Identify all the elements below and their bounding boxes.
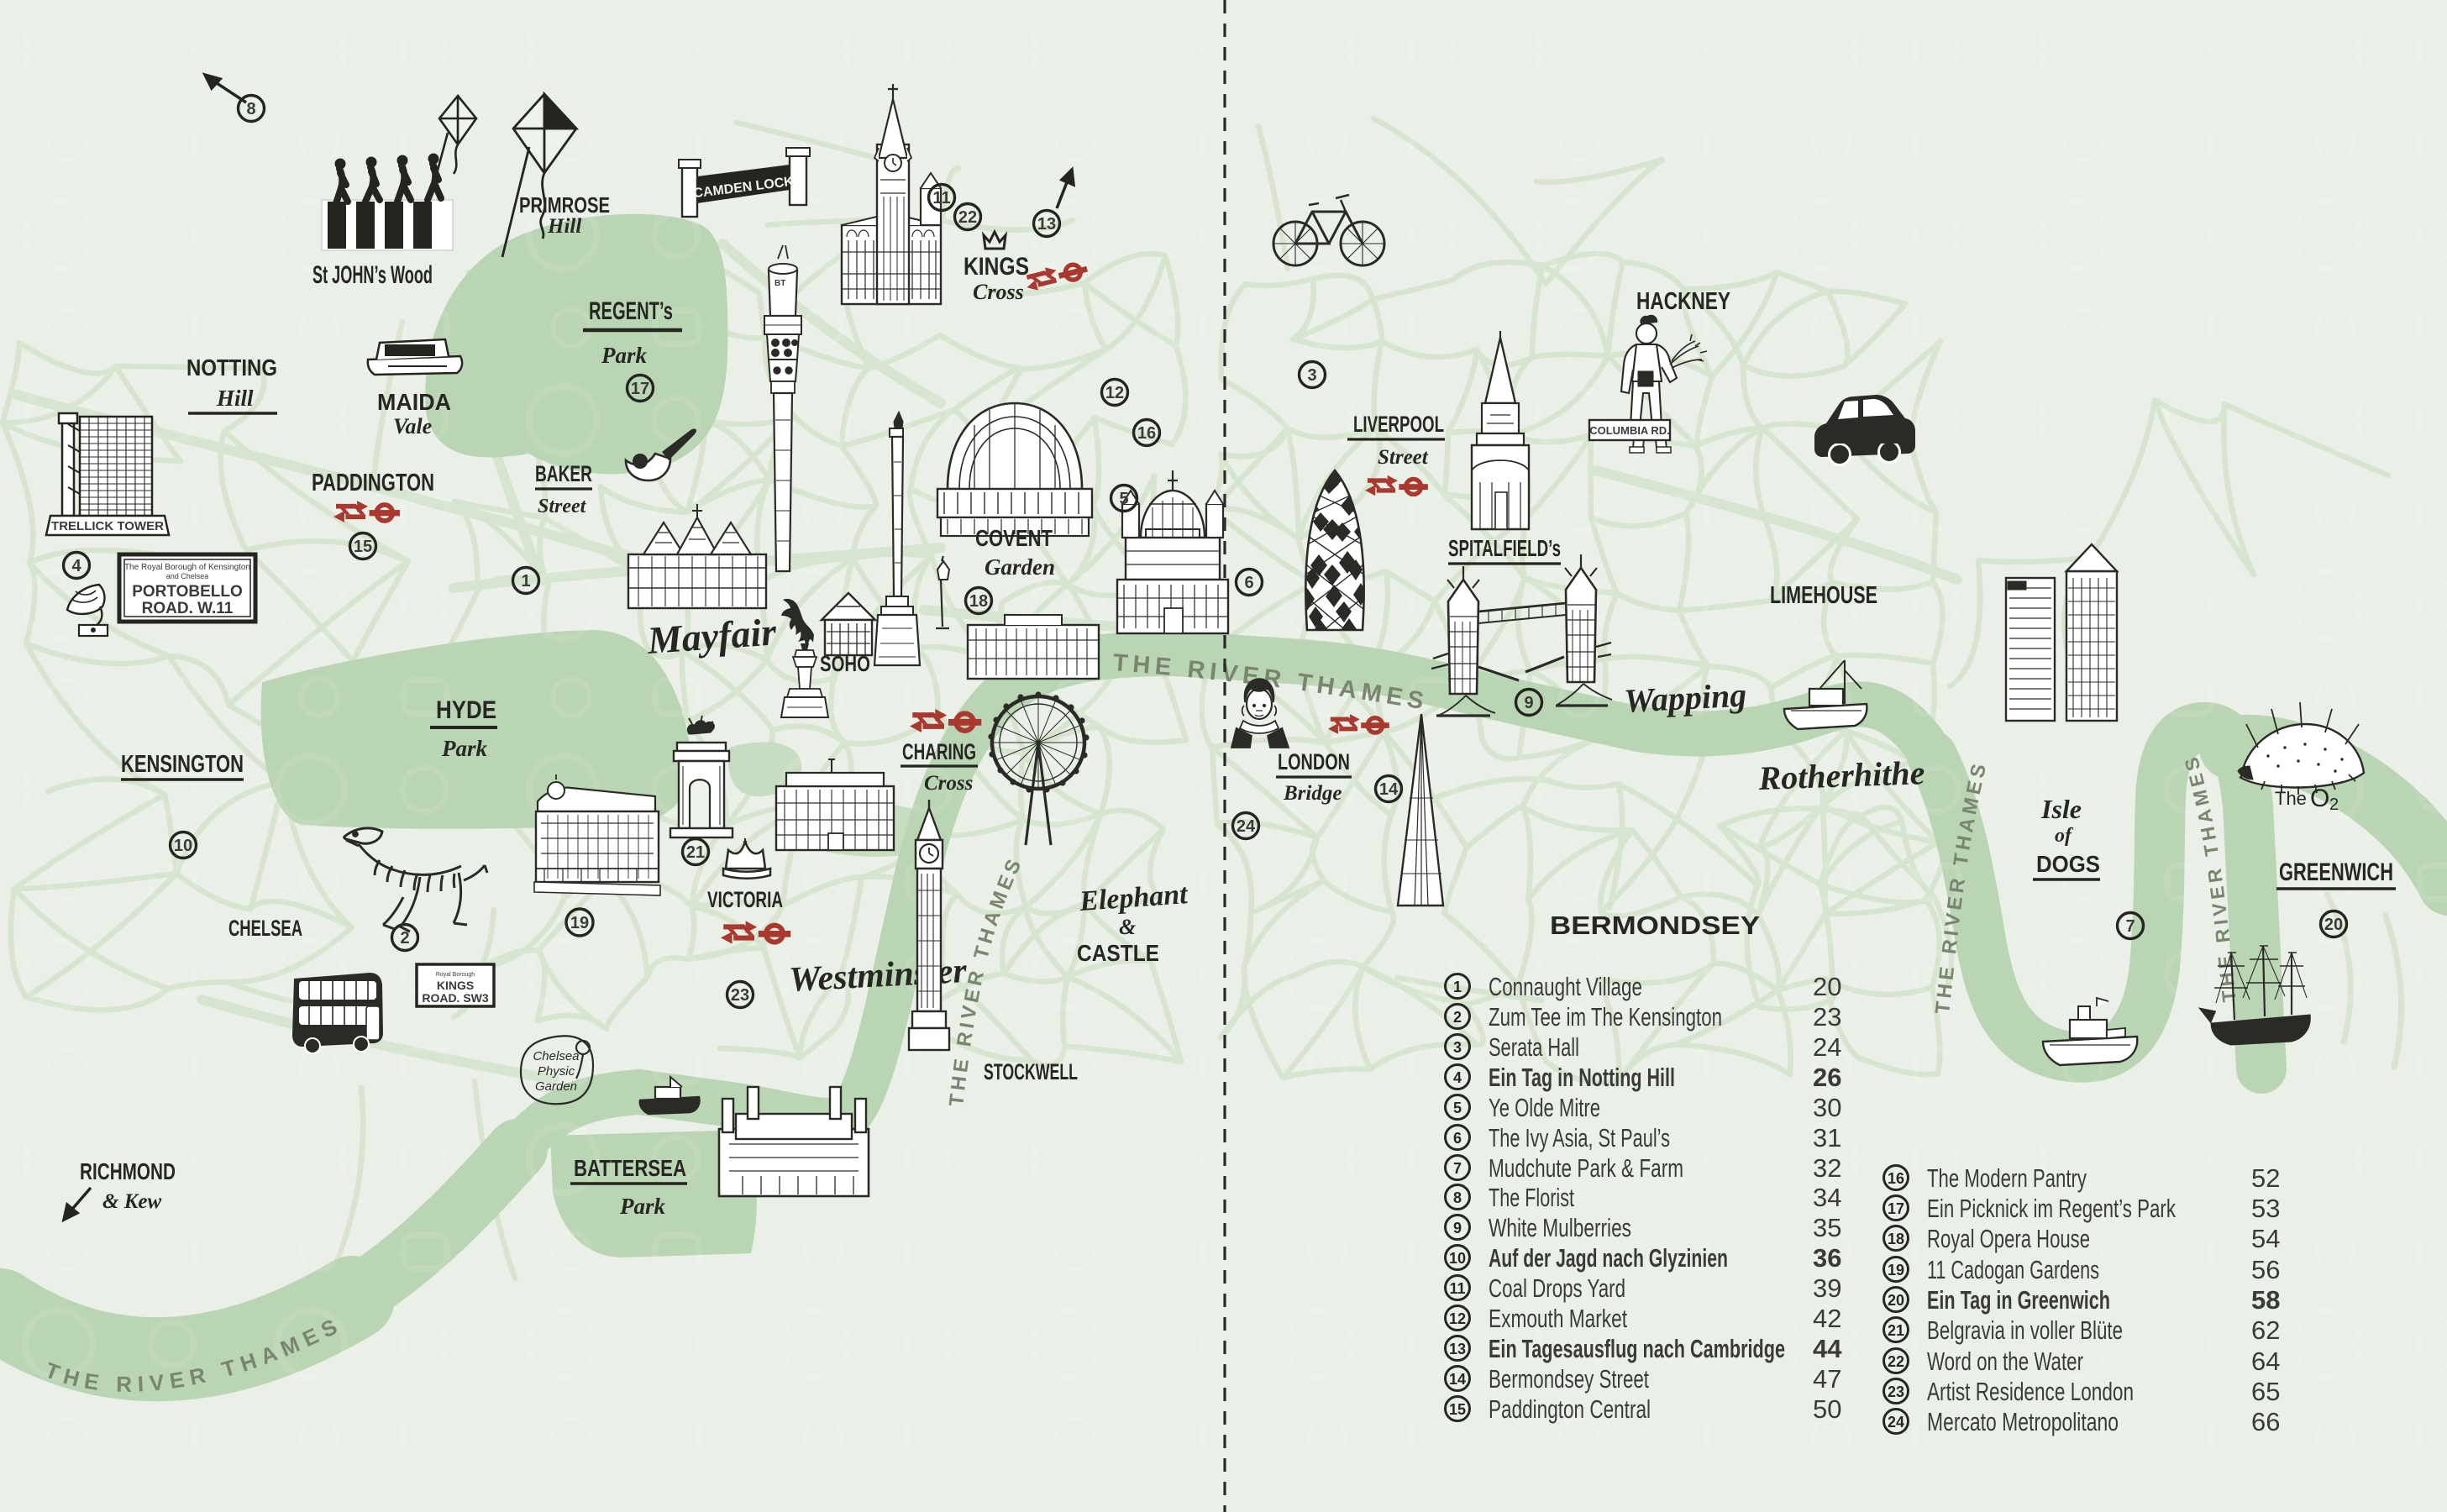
svg-text:Ye Olde Mitre: Ye Olde Mitre	[1489, 1093, 1600, 1122]
svg-text:58: 58	[2251, 1285, 2280, 1315]
svg-text:54: 54	[2251, 1224, 2280, 1253]
svg-text:BT: BT	[775, 279, 785, 288]
svg-text:Chelsea: Chelsea	[533, 1049, 579, 1063]
svg-text:Mercato Metropolitano: Mercato Metropolitano	[1927, 1407, 2119, 1436]
svg-text:1: 1	[1453, 979, 1462, 995]
svg-text:15: 15	[1449, 1401, 1466, 1418]
svg-text:42: 42	[1813, 1304, 1841, 1333]
svg-text:4: 4	[71, 557, 81, 575]
svg-text:Royal Opera House: Royal Opera House	[1927, 1224, 2090, 1253]
svg-text:6: 6	[1453, 1130, 1462, 1147]
svg-text:HACKNEY: HACKNEY	[1636, 288, 1730, 315]
svg-text:LIVERPOOL: LIVERPOOL	[1353, 412, 1444, 437]
svg-text:Bridge: Bridge	[1283, 782, 1342, 805]
svg-text:Garden: Garden	[535, 1079, 577, 1094]
svg-text:52: 52	[2251, 1163, 2280, 1193]
svg-text:Cross: Cross	[973, 280, 1024, 304]
svg-text:Ein Picknick im Regent’s Park: Ein Picknick im Regent’s Park	[1927, 1194, 2176, 1223]
svg-text:7: 7	[1453, 1160, 1462, 1177]
svg-text:11: 11	[932, 189, 950, 207]
svg-text:Word on the Water: Word on the Water	[1927, 1347, 2083, 1376]
svg-text:8: 8	[246, 100, 255, 118]
svg-text:SPITALFIELD’s: SPITALFIELD’s	[1448, 535, 1561, 561]
svg-text:24: 24	[1237, 817, 1256, 836]
svg-text:31: 31	[1813, 1123, 1841, 1152]
svg-text:CHELSEA: CHELSEA	[228, 916, 302, 941]
svg-text:The Florist: The Florist	[1489, 1183, 1574, 1212]
svg-text:44: 44	[1813, 1334, 1842, 1363]
svg-text:19: 19	[570, 914, 589, 932]
svg-text:The: The	[2275, 788, 2307, 809]
svg-text:10: 10	[174, 837, 192, 855]
svg-text:3: 3	[1307, 366, 1316, 385]
svg-text:The Modern Pantry: The Modern Pantry	[1927, 1163, 2087, 1193]
svg-text:17: 17	[631, 380, 649, 398]
svg-text:14: 14	[1449, 1371, 1466, 1388]
svg-text:24: 24	[1888, 1414, 1904, 1431]
svg-text:56: 56	[2251, 1255, 2280, 1284]
svg-text:20: 20	[1813, 972, 1841, 1001]
svg-text:19: 19	[1888, 1262, 1904, 1278]
svg-text:10: 10	[1449, 1250, 1466, 1267]
svg-text:VICTORIA: VICTORIA	[707, 887, 783, 912]
svg-text:16: 16	[1888, 1170, 1904, 1187]
svg-text:15: 15	[354, 538, 372, 556]
svg-text:NOTTING: NOTTING	[186, 354, 277, 381]
svg-text:62: 62	[2251, 1315, 2280, 1345]
svg-text:18: 18	[1888, 1231, 1904, 1247]
svg-text:COVENT: COVENT	[975, 525, 1053, 551]
svg-text:Ein Tagesausflug nach Cambridg: Ein Tagesausflug nach Cambridge	[1489, 1334, 1785, 1363]
svg-text:53: 53	[2251, 1194, 2280, 1223]
svg-text:O: O	[2310, 785, 2329, 812]
svg-text:9: 9	[1453, 1220, 1462, 1236]
svg-text:Cross: Cross	[924, 772, 973, 795]
svg-text:Connaught Village: Connaught Village	[1489, 972, 1642, 1001]
svg-text:26: 26	[1813, 1063, 1841, 1092]
svg-text:22: 22	[1888, 1353, 1904, 1370]
svg-text:Zum Tee im The Kensington: Zum Tee im The Kensington	[1489, 1002, 1722, 1032]
svg-text:HYDE: HYDE	[436, 696, 496, 724]
svg-text:Serata Hall: Serata Hall	[1489, 1032, 1579, 1062]
svg-text:Street: Street	[1378, 446, 1429, 469]
svg-text:30: 30	[1813, 1093, 1841, 1122]
svg-text:Physic: Physic	[538, 1064, 575, 1079]
svg-text:ROAD. W.11: ROAD. W.11	[142, 600, 234, 617]
svg-text:21: 21	[1888, 1322, 1904, 1339]
svg-text:Ein Tag in Greenwich: Ein Tag in Greenwich	[1927, 1285, 2110, 1315]
svg-text:23: 23	[1813, 1002, 1841, 1032]
svg-text:16: 16	[1137, 424, 1156, 443]
svg-text:Park: Park	[441, 736, 488, 761]
svg-text:Hill: Hill	[216, 386, 254, 411]
svg-text:5: 5	[1119, 490, 1128, 508]
svg-text:The Royal Borough of Kensingto: The Royal Borough of Kensington	[124, 563, 250, 572]
svg-text:Belgravia in voller Blüte: Belgravia in voller Blüte	[1927, 1315, 2123, 1345]
svg-text:6: 6	[1244, 574, 1253, 592]
svg-text:BATTERSEA: BATTERSEA	[574, 1155, 686, 1181]
svg-text:18: 18	[969, 592, 988, 611]
svg-text:1: 1	[521, 572, 530, 591]
svg-text:BERMONDSEY: BERMONDSEY	[1550, 911, 1760, 940]
svg-text:22: 22	[958, 208, 977, 227]
svg-text:White Mulberries: White Mulberries	[1489, 1213, 1631, 1242]
svg-text:47: 47	[1813, 1364, 1841, 1394]
svg-text:66: 66	[2251, 1407, 2280, 1436]
svg-text:LIMEHOUSE: LIMEHOUSE	[1770, 582, 1877, 609]
svg-text:32: 32	[1813, 1153, 1841, 1183]
svg-text:21: 21	[686, 843, 705, 862]
svg-text:PRIMROSE: PRIMROSE	[519, 192, 610, 218]
svg-text:Park: Park	[601, 343, 648, 368]
svg-text:5: 5	[1453, 1100, 1462, 1116]
svg-text:KINGS: KINGS	[437, 979, 474, 992]
svg-text:Mudchute Park & Farm: Mudchute Park & Farm	[1489, 1153, 1683, 1183]
svg-text:COLUMBIA RD.: COLUMBIA RD.	[1589, 424, 1670, 437]
svg-text:St JOHN’s Wood: St JOHN’s Wood	[312, 261, 433, 289]
svg-text:2: 2	[2329, 795, 2339, 814]
svg-text:LONDON: LONDON	[1278, 749, 1350, 774]
svg-text:Isle: Isle	[2040, 794, 2082, 824]
svg-text:23: 23	[731, 986, 749, 1005]
svg-text:14: 14	[1379, 780, 1399, 799]
svg-text:Exmouth Market: Exmouth Market	[1489, 1304, 1627, 1333]
svg-text:Vale: Vale	[393, 414, 432, 438]
svg-text:7: 7	[2125, 917, 2135, 936]
svg-text:64: 64	[2251, 1347, 2280, 1376]
svg-text:Garden: Garden	[985, 554, 1055, 580]
svg-text:12: 12	[1449, 1310, 1466, 1327]
svg-text:SOHO: SOHO	[820, 651, 870, 676]
svg-text:STOCKWELL: STOCKWELL	[984, 1059, 1078, 1084]
svg-text:PADDINGTON: PADDINGTON	[312, 470, 434, 496]
svg-text:24: 24	[1813, 1032, 1841, 1062]
svg-text:&: &	[1119, 915, 1136, 939]
svg-text:20: 20	[2324, 916, 2343, 934]
svg-text:65: 65	[2251, 1377, 2280, 1406]
svg-text:39: 39	[1813, 1273, 1841, 1303]
svg-text:Bermondsey Street: Bermondsey Street	[1489, 1364, 1649, 1394]
svg-text:11 Cadogan Gardens: 11 Cadogan Gardens	[1927, 1255, 2099, 1284]
svg-text:23: 23	[1888, 1383, 1904, 1400]
svg-text:of: of	[2055, 825, 2073, 847]
svg-text:12: 12	[1105, 384, 1124, 402]
svg-text:Rotherhithe: Rotherhithe	[1757, 753, 1925, 797]
svg-text:9: 9	[1524, 694, 1533, 712]
svg-text:MAIDA: MAIDA	[377, 389, 451, 415]
svg-text:Auf der Jagd nach Glyzinien: Auf der Jagd nach Glyzinien	[1489, 1243, 1728, 1273]
svg-text:Ein Tag in Notting Hill: Ein Tag in Notting Hill	[1489, 1063, 1675, 1092]
svg-text:ROAD. SW3: ROAD. SW3	[422, 991, 489, 1005]
svg-text:Wapping: Wapping	[1623, 675, 1747, 720]
svg-text:Park: Park	[619, 1194, 666, 1219]
svg-text:Royal Borough: Royal Borough	[436, 972, 475, 978]
svg-text:Artist Residence London: Artist Residence London	[1927, 1377, 2134, 1406]
svg-text:KINGS: KINGS	[964, 253, 1029, 281]
svg-text:34: 34	[1813, 1183, 1841, 1212]
svg-text:CHARING: CHARING	[902, 739, 976, 764]
svg-text:8: 8	[1453, 1189, 1462, 1206]
svg-text:13: 13	[1037, 215, 1056, 234]
svg-text:35: 35	[1813, 1213, 1841, 1242]
svg-text:Paddington Central: Paddington Central	[1489, 1394, 1651, 1424]
svg-text:Hill: Hill	[547, 215, 581, 238]
svg-text:36: 36	[1813, 1243, 1841, 1273]
svg-text:GREENWICH: GREENWICH	[2279, 858, 2393, 886]
svg-text:BAKER: BAKER	[535, 461, 592, 486]
svg-text:13: 13	[1449, 1341, 1466, 1357]
svg-text:KENSINGTON: KENSINGTON	[121, 751, 244, 778]
svg-text:DOGS: DOGS	[2036, 851, 2100, 877]
svg-text:50: 50	[1813, 1394, 1841, 1424]
svg-text:4: 4	[1453, 1069, 1462, 1086]
svg-text:Coal Drops Yard: Coal Drops Yard	[1489, 1273, 1625, 1303]
svg-text:TRELLICK TOWER: TRELLICK TOWER	[51, 519, 164, 533]
svg-text:11: 11	[1449, 1280, 1465, 1297]
svg-text:and Chelsea: and Chelsea	[166, 572, 209, 580]
svg-text:3: 3	[1453, 1039, 1462, 1056]
svg-text:2: 2	[1453, 1009, 1462, 1026]
svg-text:PORTOBELLO: PORTOBELLO	[132, 583, 243, 601]
svg-text:17: 17	[1888, 1200, 1904, 1217]
svg-text:REGENT’s: REGENT’s	[589, 297, 673, 325]
svg-text:The Ivy Asia, St Paul’s: The Ivy Asia, St Paul’s	[1489, 1123, 1670, 1152]
svg-text:CASTLE: CASTLE	[1077, 940, 1159, 966]
svg-text:20: 20	[1888, 1292, 1904, 1309]
svg-text:Mayfair: Mayfair	[645, 610, 779, 662]
svg-text:& Kew: & Kew	[102, 1190, 161, 1213]
svg-text:Street: Street	[538, 496, 587, 517]
svg-text:RICHMOND: RICHMOND	[80, 1158, 176, 1184]
